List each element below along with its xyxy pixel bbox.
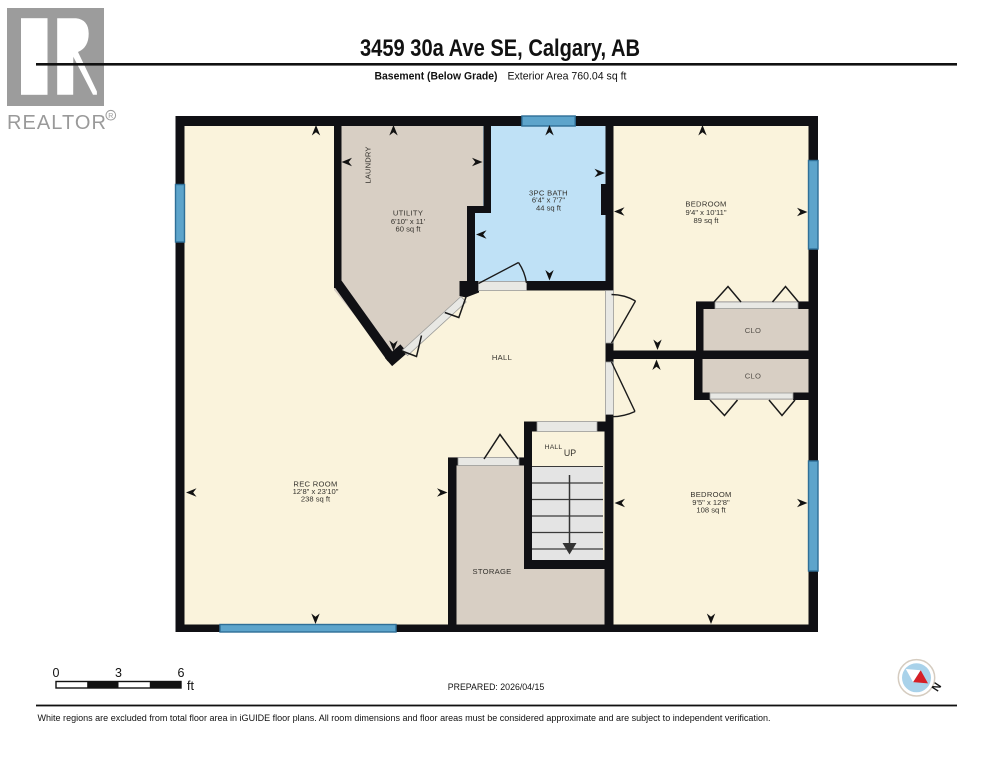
svg-text:89 sq ft: 89 sq ft [694,216,720,225]
svg-text:STORAGE: STORAGE [472,567,511,576]
svg-text:238 sq ft: 238 sq ft [301,495,331,504]
svg-text:0: 0 [53,666,60,680]
svg-text:108 sq ft: 108 sq ft [696,506,726,515]
svg-text:LAUNDRY: LAUNDRY [363,146,372,183]
svg-text:White regions are excluded fro: White regions are excluded from total fl… [38,713,771,723]
svg-text:CLO: CLO [745,372,762,381]
svg-text:6: 6 [178,666,185,680]
svg-text:REALTOR: REALTOR [7,112,107,134]
svg-text:ft: ft [187,679,194,693]
svg-text:3459 30a Ave SE, Calgary, AB: 3459 30a Ave SE, Calgary, AB [360,35,640,62]
svg-text:HALL: HALL [545,444,563,451]
svg-text:3: 3 [115,666,122,680]
svg-text:44 sq ft: 44 sq ft [536,204,562,213]
svg-text:CLO: CLO [745,326,762,335]
svg-text:60 sq ft: 60 sq ft [396,225,422,234]
svg-text:R: R [108,113,113,120]
svg-text:HALL: HALL [492,353,512,362]
svg-text:Exterior Area 760.04 sq ft: Exterior Area 760.04 sq ft [508,71,627,83]
svg-text:UP: UP [564,448,576,458]
svg-text:PREPARED: 2026/04/15: PREPARED: 2026/04/15 [448,682,545,692]
svg-text:Basement (Below Grade): Basement (Below Grade) [375,71,498,83]
